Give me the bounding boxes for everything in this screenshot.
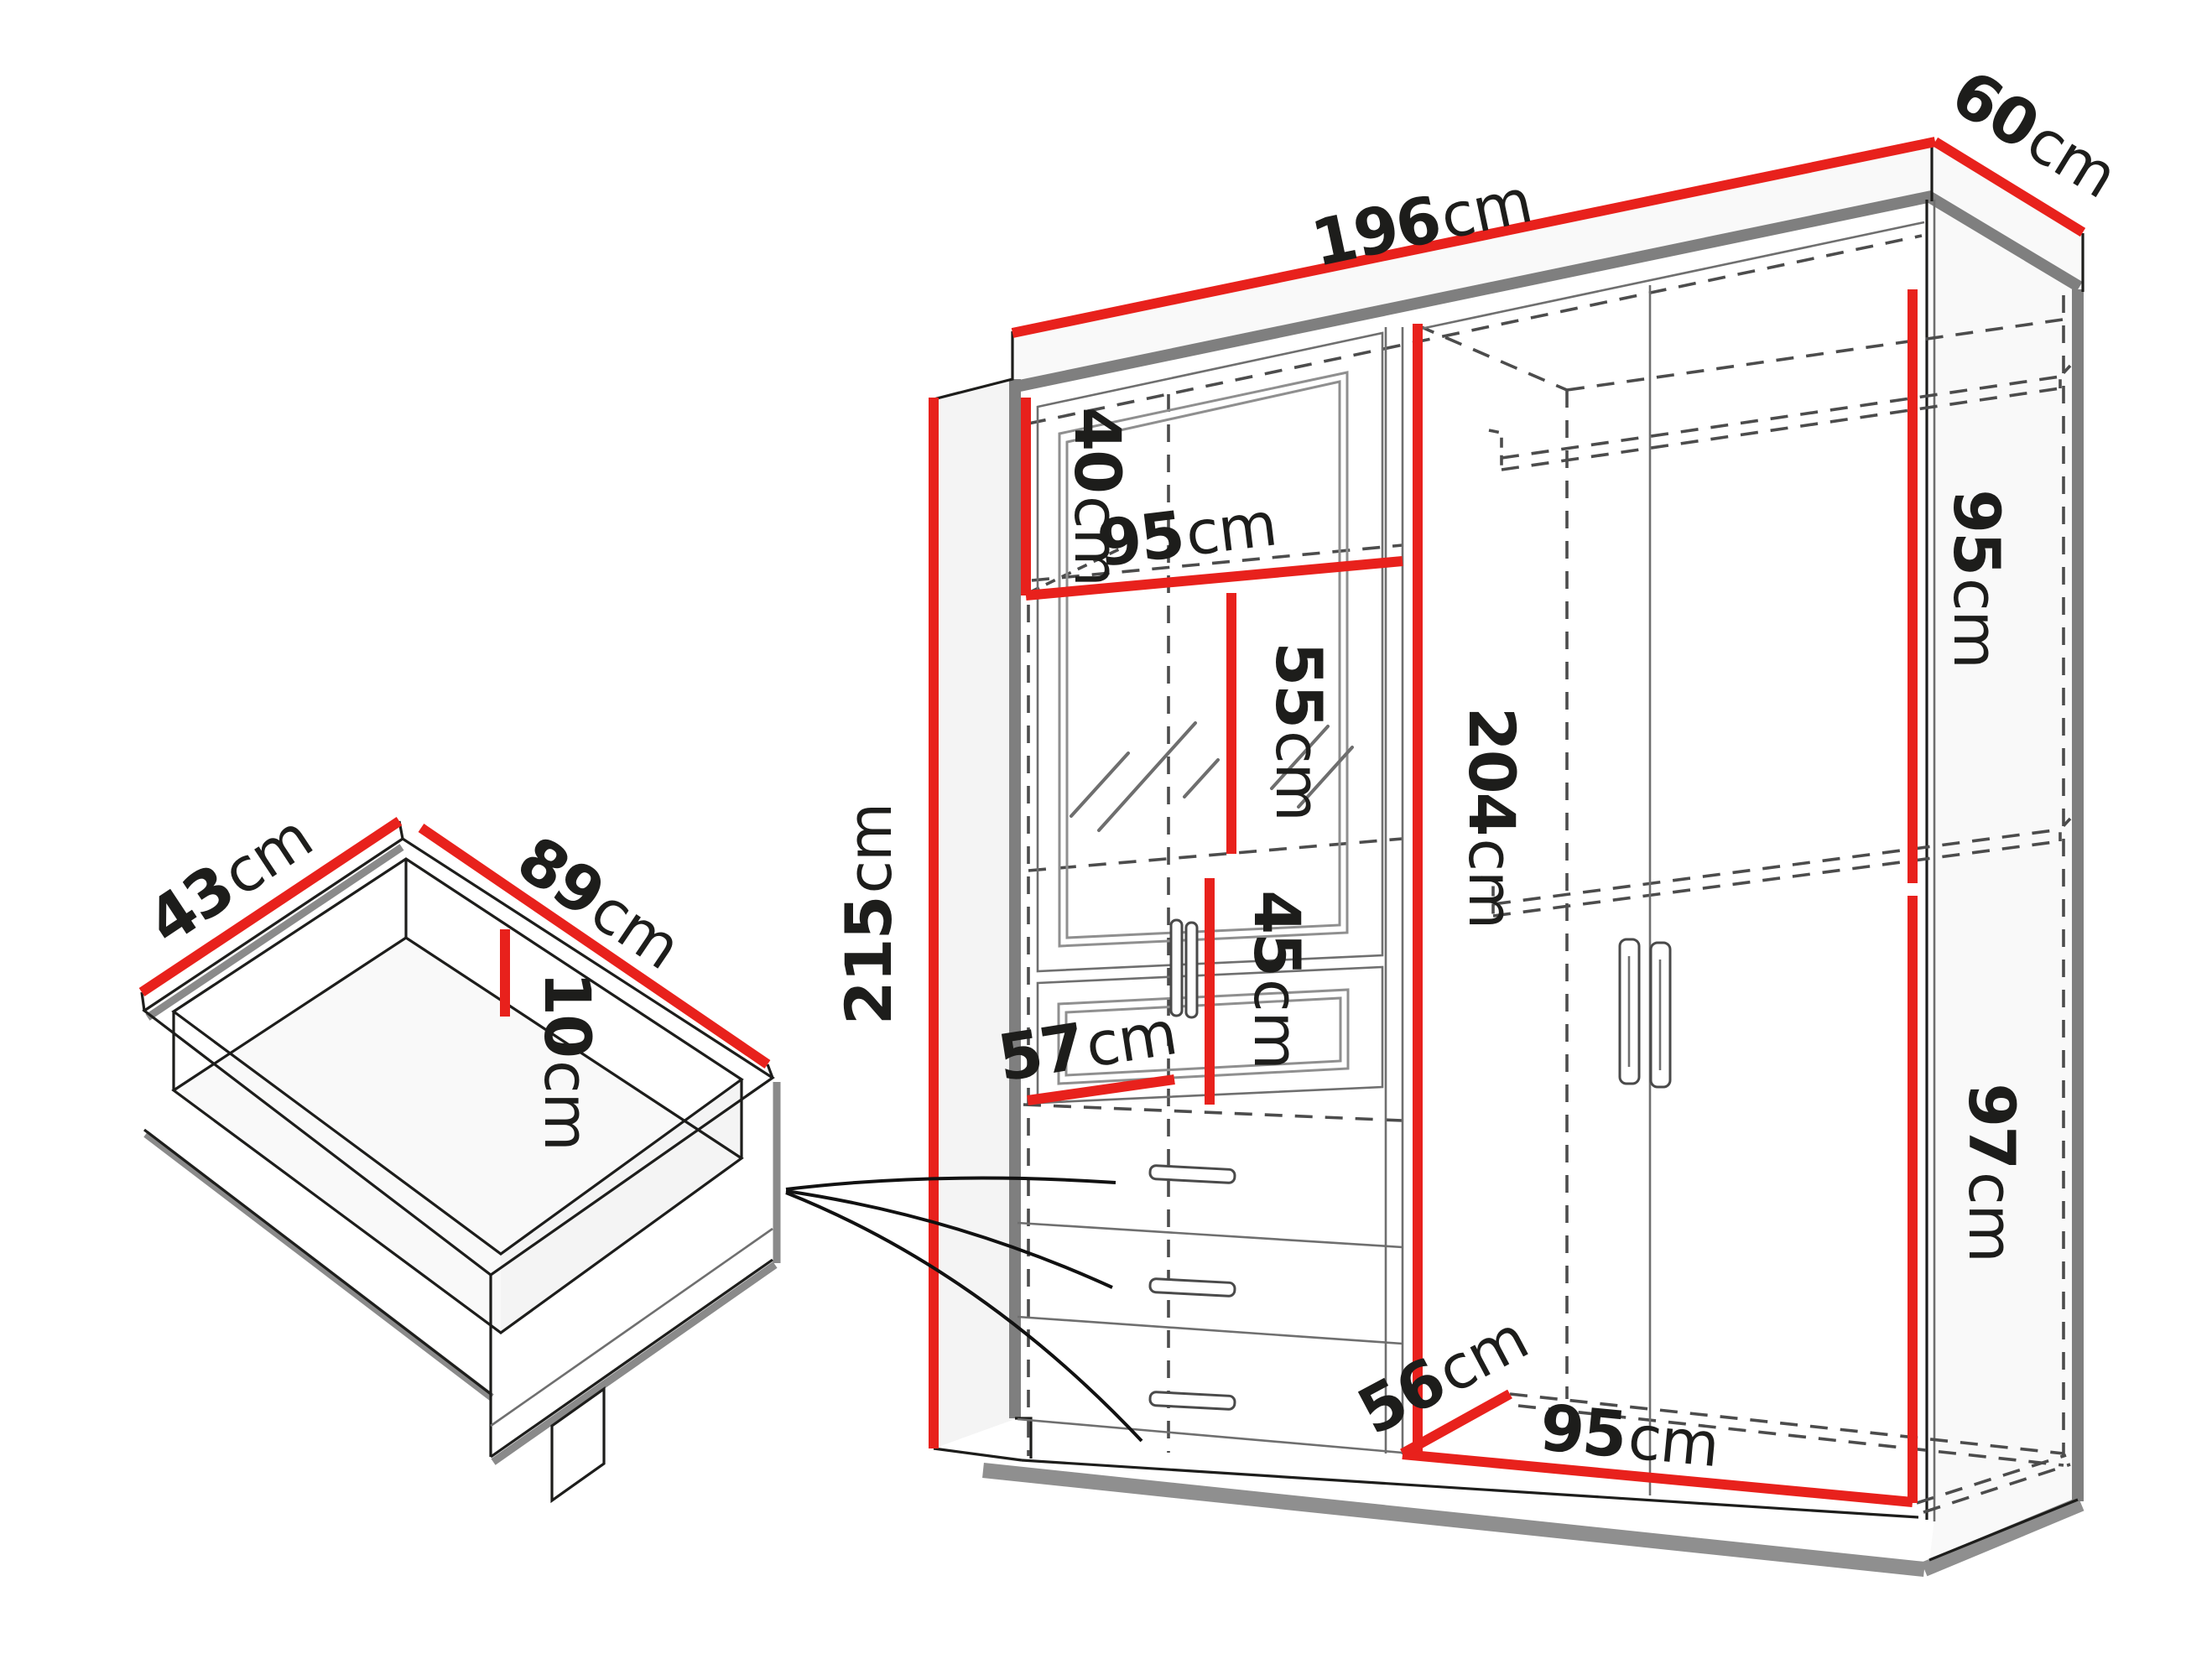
label-drawer-height-10: 10cm bbox=[530, 971, 605, 1151]
label-height-215: 215cm bbox=[831, 803, 906, 1025]
drawer-handle-1 bbox=[1150, 1165, 1236, 1183]
wardrobe-dimension-diagram: 196cm 60cm 215cm 40cm 95cm 55cm 45cm 204… bbox=[0, 0, 2212, 1659]
drawer-handle-2 bbox=[1150, 1278, 1236, 1296]
wardrobe-left-side-sliver bbox=[934, 382, 1015, 1448]
lower-door-handle bbox=[1186, 923, 1197, 1017]
label-interior-204: 204cm bbox=[1455, 707, 1529, 928]
label-mirror-55: 55cm bbox=[1262, 642, 1336, 821]
label-lower-hang-97: 97cm bbox=[1954, 1083, 2029, 1262]
label-drawer-width-89: 89cm bbox=[504, 821, 695, 983]
upper-door-handle bbox=[1171, 920, 1182, 1016]
bottom-left-diag bbox=[934, 1448, 1022, 1460]
drawer-handle-3 bbox=[1150, 1391, 1236, 1409]
label-upper-hang-95: 95cm bbox=[1939, 489, 2014, 668]
label-lower-glass-45: 45cm bbox=[1240, 890, 1314, 1069]
